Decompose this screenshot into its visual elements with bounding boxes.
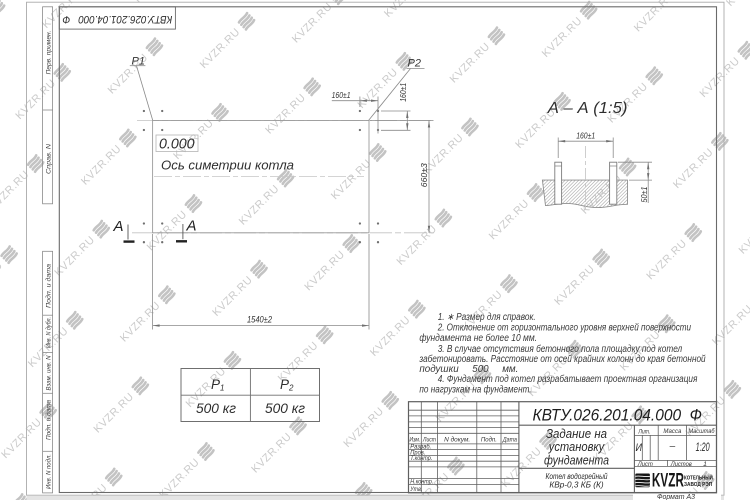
svg-text:KVZR.RU: KVZR.RU: [487, 197, 532, 242]
svg-text:50±1: 50±1: [639, 186, 649, 202]
svg-text:1:20: 1:20: [696, 442, 710, 454]
svg-text:Справ. N: Справ. N: [45, 144, 52, 174]
svg-text:160±1: 160±1: [576, 131, 595, 141]
svg-text:P2: P2: [280, 377, 294, 393]
svg-text:Т.контр.: Т.контр.: [410, 455, 432, 462]
svg-text:660±3: 660±3: [419, 163, 429, 187]
svg-text:160±1: 160±1: [332, 90, 351, 100]
svg-text:И: И: [635, 442, 642, 454]
svg-text:KVZR.RU: KVZR.RU: [13, 77, 58, 122]
svg-text:Задание на: Задание на: [546, 427, 607, 441]
svg-text:Н.контр.: Н.контр.: [410, 478, 433, 485]
svg-text:КВТУ.026.201.04.000 Ф: КВТУ.026.201.04.000 Ф: [533, 406, 703, 424]
svg-text:Подп. и дата: Подп. и дата: [44, 264, 52, 308]
svg-text:установку: установку: [548, 440, 605, 454]
svg-text:KVZR.RU: KVZR.RU: [448, 40, 493, 85]
svg-text:KVZR.RU: KVZR.RU: [198, 26, 243, 71]
svg-text:Инв. N дубл.: Инв. N дубл.: [44, 317, 52, 348]
svg-text:KVZR.RU: KVZR.RU: [644, 237, 689, 282]
svg-text:KVZR: KVZR: [652, 471, 684, 491]
svg-text:KVZR.RU: KVZR.RU: [552, 263, 597, 308]
svg-text:Подп. и дата: Подп. и дата: [44, 400, 52, 440]
svg-text:1540±2: 1540±2: [247, 315, 272, 325]
svg-text:Перв. примен.: Перв. примен.: [45, 30, 52, 74]
svg-text:А: А: [186, 218, 197, 235]
svg-text:Утв.: Утв.: [409, 486, 422, 493]
svg-text:по нагрузкам на фундамент.: по нагрузкам на фундамент.: [419, 384, 531, 395]
svg-text:КОТЕЛЬНЫЙ: КОТЕЛЬНЫЙ: [684, 473, 713, 481]
svg-text:KVZR.RU: KVZR.RU: [368, 314, 413, 359]
svg-text:ЗАВОД РЭП: ЗАВОД РЭП: [684, 482, 712, 488]
svg-text:KVZR.RU: KVZR.RU: [210, 274, 255, 319]
svg-text:КВТУ.026.201.04.000 Ф: КВТУ.026.201.04.000 Ф: [62, 13, 172, 25]
svg-text:KVZR.RU: KVZR.RU: [237, 183, 282, 228]
svg-text:N докум.: N докум.: [444, 437, 470, 444]
svg-text:2. Отклонение от горизонтально: 2. Отклонение от горизонтального уровня …: [437, 323, 692, 334]
svg-text:КВр-0,3 КБ (К): КВр-0,3 КБ (К): [549, 479, 604, 489]
svg-text:KVZR.RU: KVZR.RU: [499, 445, 544, 490]
svg-text:Инв. N подл.: Инв. N подл.: [44, 454, 52, 489]
svg-text:KVZR.RU: KVZR.RU: [737, 212, 750, 257]
svg-text:Лист: Лист: [422, 437, 436, 444]
svg-text:KVZR.RU: KVZR.RU: [0, 168, 32, 213]
svg-text:фундамента: фундамента: [544, 453, 609, 467]
svg-text:KVZR.RU: KVZR.RU: [540, 15, 585, 60]
svg-text:0.000: 0.000: [159, 137, 195, 153]
svg-text:KVZR.RU: KVZR.RU: [0, 259, 5, 304]
svg-text:Лист: Лист: [637, 461, 653, 468]
svg-text:KVZR.RU: KVZR.RU: [698, 55, 743, 100]
svg-text:Ось симетрии котла: Ось симетрии котла: [161, 158, 294, 173]
svg-text:фундамента не более 10 мм.: фундамента не более 10 мм.: [419, 333, 537, 344]
svg-text:Подп.: Подп.: [481, 437, 497, 444]
svg-text:500 кг: 500 кг: [196, 401, 236, 416]
svg-text:KVZR.RU: KVZR.RU: [263, 92, 308, 137]
svg-text:KVZR.RU: KVZR.RU: [92, 391, 137, 436]
svg-text:Масса: Масса: [663, 428, 681, 435]
svg-text:А: А: [113, 218, 124, 235]
svg-text:KVZR.RU: KVZR.RU: [157, 456, 202, 500]
svg-text:P2: P2: [408, 58, 421, 70]
svg-text:KVZR.RU: KVZR.RU: [724, 0, 750, 9]
svg-text:1: 1: [703, 461, 707, 468]
svg-text:KVZR.RU: KVZR.RU: [249, 431, 294, 476]
svg-text:160±1: 160±1: [398, 83, 408, 102]
svg-text:KVZR.RU: KVZR.RU: [0, 416, 44, 461]
svg-text:Взам. инв. N: Взам. инв. N: [45, 355, 52, 390]
svg-text:KVZR.RU: KVZR.RU: [118, 299, 163, 344]
svg-text:Формат А3: Формат А3: [657, 492, 696, 500]
svg-text:1. ∗ Размер для справок.: 1. ∗ Размер для справок.: [438, 312, 536, 323]
svg-text:KVZR.RU: KVZR.RU: [132, 0, 177, 5]
svg-text:500 кг: 500 кг: [265, 401, 305, 416]
svg-text:Дата: Дата: [502, 437, 517, 444]
svg-text:KVZR.RU: KVZR.RU: [329, 157, 374, 202]
svg-text:А – А (1:5): А – А (1:5): [547, 100, 628, 117]
svg-text:KVZR.RU: KVZR.RU: [395, 223, 440, 268]
svg-text:KVZR.RU: KVZR.RU: [79, 143, 124, 188]
svg-text:KVZR.RU: KVZR.RU: [632, 0, 677, 34]
svg-text:–: –: [669, 441, 676, 452]
svg-text:KVZR.RU: KVZR.RU: [341, 405, 386, 450]
svg-text:Масштаб: Масштаб: [689, 427, 716, 435]
svg-text:Листов: Листов: [670, 461, 692, 468]
svg-text:KVZR.RU: KVZR.RU: [671, 146, 716, 191]
svg-text:KVZR.RU: KVZR.RU: [302, 248, 347, 293]
svg-text:Изм.: Изм.: [409, 437, 420, 444]
svg-text:Лит.: Лит.: [638, 429, 651, 436]
svg-text:KVZR.RU: KVZR.RU: [382, 0, 427, 20]
